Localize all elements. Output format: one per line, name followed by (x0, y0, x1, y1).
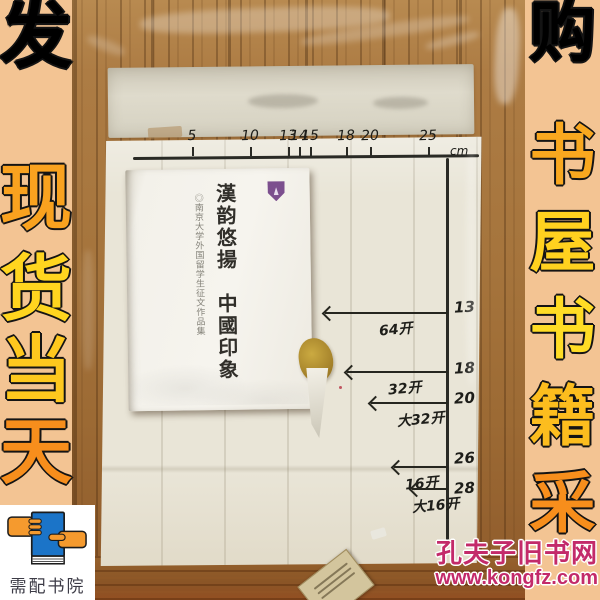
banner-char: 采 (525, 471, 600, 537)
book-title: 漢韵悠揚 中國印象 (210, 183, 242, 408)
banner-char: 天 (0, 416, 72, 488)
book-subtitle: ◎南京大学外国留学生征文作品集 (193, 193, 208, 363)
ruler-h-number: 25 (416, 128, 441, 145)
ruler-h-number: 15 (298, 128, 323, 145)
banner-char: 屋 (525, 210, 600, 276)
ruler-h-tickmark (370, 147, 372, 156)
format-arrow (347, 371, 448, 373)
format-arrow (325, 312, 448, 314)
bookstore-logo: 需配书院 (0, 505, 95, 600)
book-format-label: 32开 (387, 377, 422, 400)
ruler-v-number: 26 (454, 448, 481, 467)
bookstore-name: 需配书院 (0, 572, 95, 597)
plastic-wrap-shine (82, 250, 94, 370)
banner-char: 现 (0, 162, 72, 234)
banner-char: 书 (525, 123, 600, 189)
banner-char: 籍 (525, 384, 600, 450)
banner-char: 当 (0, 334, 72, 406)
ruler-h-tickmark (346, 147, 348, 156)
ruler-h-tickmark (192, 147, 194, 156)
banner-char: 书 (525, 297, 600, 363)
ruler-h-tickmark (428, 147, 430, 156)
vertical-ruler-line (446, 158, 449, 540)
kongfz-site-name: 孔夫子旧书网 (435, 540, 598, 566)
banner-char: 货 (0, 253, 72, 325)
ruler-h-tickmark (288, 147, 290, 156)
ruler-h-number: 18 (334, 128, 359, 145)
tape-patch (148, 126, 183, 139)
kongfz-watermark: 孔夫子旧书网 www.kongfz.com (435, 540, 598, 588)
book-cover: 漢韵悠揚 中國印象 ◎南京大学外国留学生征文作品集 (125, 168, 312, 412)
ruler-unit-label: cm (450, 144, 468, 158)
plastic-wrap-shine (466, 150, 477, 385)
book-format-label: 大16开 (412, 493, 461, 517)
banner-char: 发 (0, 0, 72, 72)
red-ink-dot (339, 386, 342, 389)
ruler-h-tickmark (250, 147, 252, 156)
book-format-label: 64开 (378, 318, 413, 341)
format-arrow (394, 466, 448, 468)
pencil-smudge (373, 97, 428, 110)
format-arrow (371, 402, 448, 404)
ruler-h-tickmark (299, 147, 301, 156)
banner-char: 购 (525, 0, 600, 66)
ruler-h-number: 20 (358, 128, 383, 145)
ruler-h-number: 5 (180, 128, 205, 145)
book-listing-photo: 510131415182025131820262864开32开大32开16开大1… (0, 0, 600, 600)
format-arrow (412, 488, 448, 490)
right-promo-banner: 书 屋 书 籍 采 购 (525, 0, 600, 600)
ruler-h-number: 10 (238, 128, 263, 145)
pencil-smudge (248, 94, 318, 109)
university-emblem-icon (267, 181, 284, 201)
book-format-label: 大32开 (396, 407, 445, 431)
hands-book-icon (7, 508, 87, 570)
kongfz-site-url: www.kongfz.com (435, 568, 598, 588)
ruler-v-number: 20 (454, 388, 481, 407)
ruler-h-tickmark (310, 147, 312, 156)
